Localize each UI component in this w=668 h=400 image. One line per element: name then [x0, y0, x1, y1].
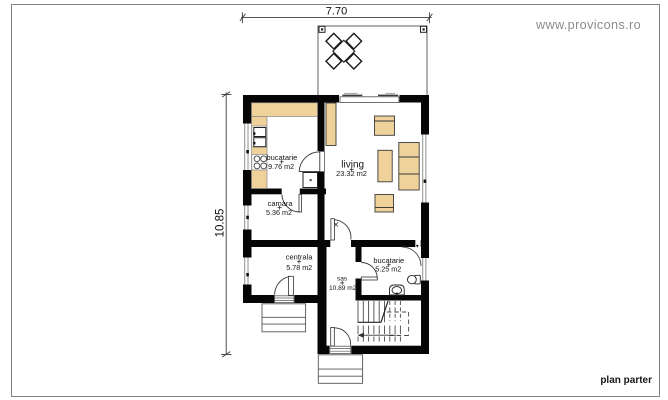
svg-text:camara: camara: [268, 199, 294, 208]
svg-text:5.78 m2: 5.78 m2: [286, 263, 312, 272]
svg-text:5.36 m2: 5.36 m2: [266, 208, 292, 217]
svg-text:10.85: 10.85: [215, 209, 227, 238]
svg-text:www.provicons.ro: www.provicons.ro: [535, 18, 641, 32]
svg-text:5.25 m2: 5.25 m2: [375, 265, 401, 274]
svg-text:plan parter: plan parter: [600, 375, 652, 386]
svg-text:9.76 m2: 9.76 m2: [268, 162, 294, 171]
svg-text:centrala: centrala: [286, 252, 314, 261]
svg-text:10.89 m2: 10.89 m2: [329, 285, 357, 292]
svg-text:7.70: 7.70: [326, 6, 347, 18]
